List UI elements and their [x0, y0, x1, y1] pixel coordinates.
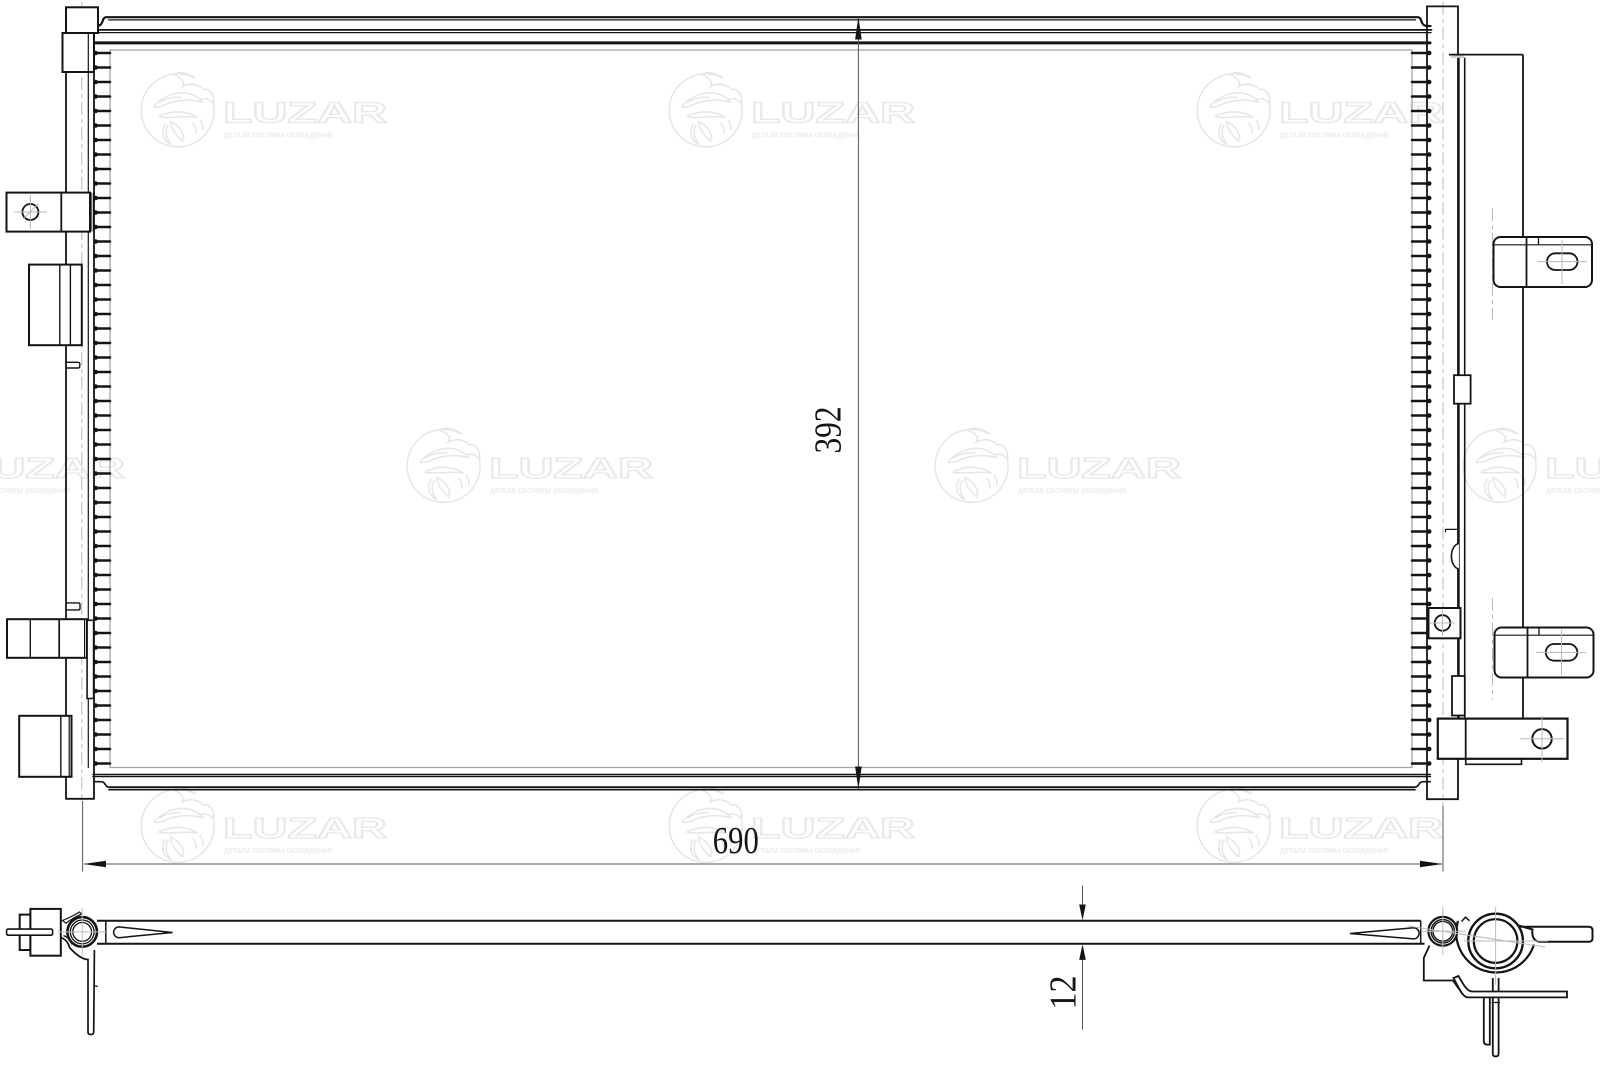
svg-text:392: 392: [808, 407, 850, 454]
svg-text:690: 690: [713, 820, 759, 862]
svg-text:12: 12: [1043, 976, 1085, 1010]
